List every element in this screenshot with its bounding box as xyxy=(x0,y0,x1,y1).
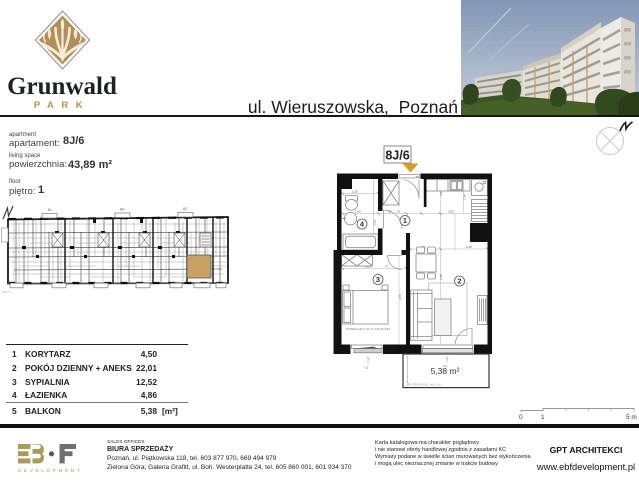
svg-text:Grunwald: Grunwald xyxy=(7,73,117,100)
svg-text:STREFA CAŁK. PŁYT. JAK WYŻEJ: STREFA CAŁK. PŁYT. JAK WYŻEJ xyxy=(346,326,391,331)
svg-text:2: 2 xyxy=(457,277,461,286)
svg-text:4,40: 4,40 xyxy=(439,274,443,280)
svg-text:21: 21 xyxy=(397,210,401,214)
svg-text:BALUSTRADA SZKL. H=1,10 cm: BALUSTRADA SZKL. H=1,10 cm xyxy=(406,384,441,387)
svg-text:2,02: 2,02 xyxy=(373,219,377,225)
svg-text:2,2: 2,2 xyxy=(443,364,448,368)
svg-text:1: 1 xyxy=(541,414,545,421)
svg-text:RZUT 1: RZUT 1 xyxy=(2,290,12,294)
svg-text:77: 77 xyxy=(385,265,389,269)
svg-text:DEVELOPMENT: DEVELOPMENT xyxy=(18,468,82,474)
svg-text:0: 0 xyxy=(519,414,523,421)
svg-text:3: 3 xyxy=(376,275,380,284)
svg-text:1,60: 1,60 xyxy=(355,210,361,214)
svg-text:8L: 8L xyxy=(48,207,53,212)
svg-text:PARK: PARK xyxy=(34,100,90,111)
svg-text:7,2: 7,2 xyxy=(364,366,369,370)
svg-text:8J/6: 8J/6 xyxy=(385,149,409,163)
svg-text:5 m: 5 m xyxy=(626,414,637,421)
svg-text:2,45: 2,45 xyxy=(466,245,472,249)
svg-text:4,76: 4,76 xyxy=(398,294,402,300)
svg-text:3,03: 3,03 xyxy=(448,210,454,214)
svg-text:1,49: 1,49 xyxy=(463,194,467,200)
svg-text:8J: 8J xyxy=(183,206,187,211)
svg-text:75: 75 xyxy=(416,175,420,179)
svg-text:8K: 8K xyxy=(120,207,125,212)
svg-text:1,55: 1,55 xyxy=(352,190,358,194)
svg-text:1: 1 xyxy=(403,216,407,225)
